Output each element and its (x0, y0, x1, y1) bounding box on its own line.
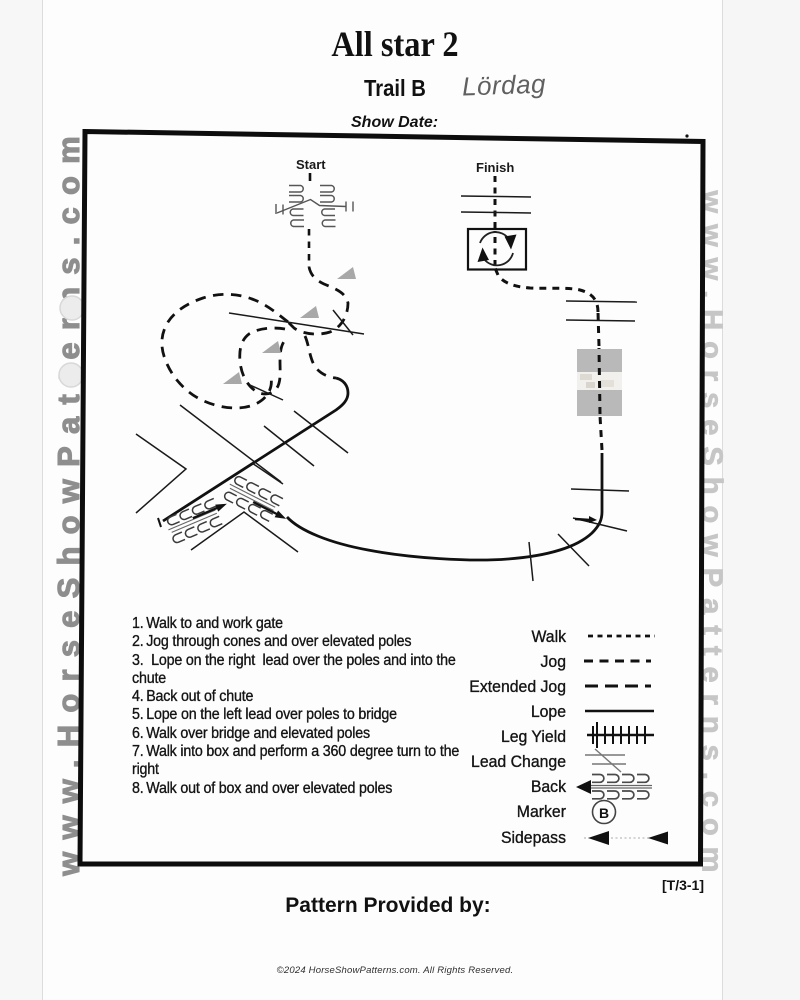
svg-text:B: B (599, 805, 609, 821)
